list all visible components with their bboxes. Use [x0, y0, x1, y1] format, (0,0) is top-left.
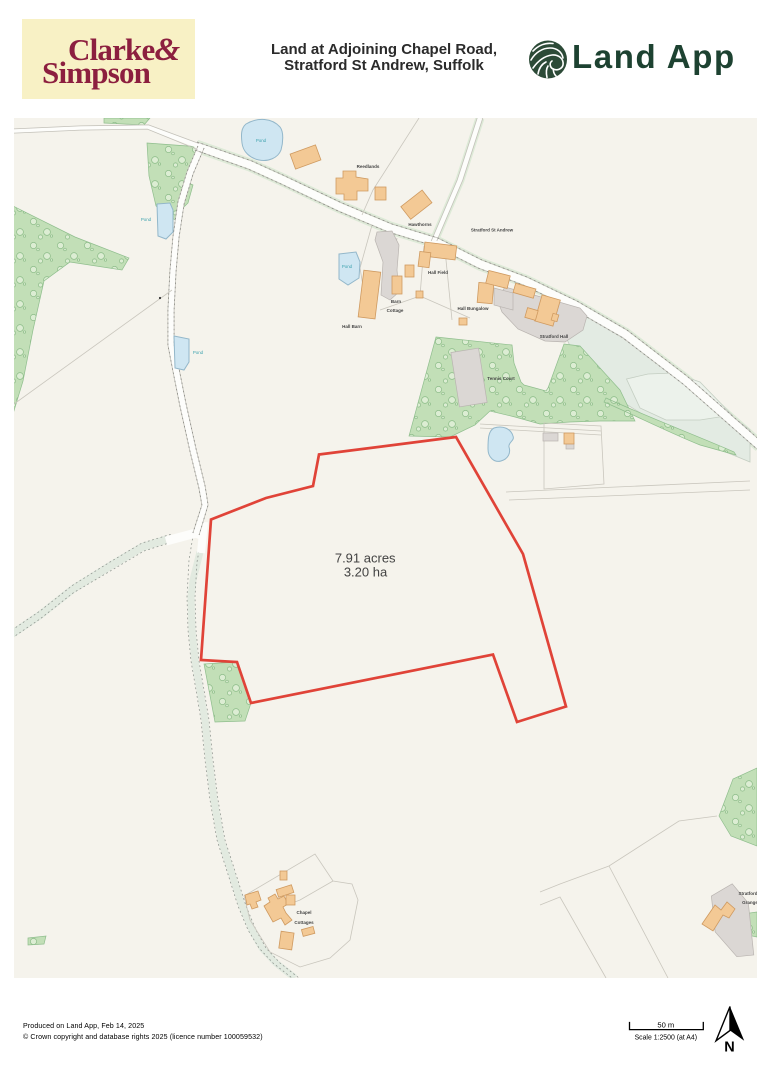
svg-text:Pond: Pond: [256, 138, 267, 143]
svg-text:3.20 ha: 3.20 ha: [344, 565, 388, 580]
svg-text:Cottage: Cottage: [387, 308, 404, 313]
svg-text:Reedlands: Reedlands: [357, 164, 380, 169]
svg-text:N: N: [724, 1040, 734, 1056]
svg-text:Pond: Pond: [193, 350, 204, 355]
svg-text:7.91 acres: 7.91 acres: [335, 551, 396, 566]
svg-text:Stratford Hall: Stratford Hall: [540, 334, 569, 339]
svg-text:Grange: Grange: [742, 900, 758, 905]
svg-text:50 m: 50 m: [657, 1020, 674, 1029]
svg-text:Hawthorns: Hawthorns: [408, 222, 432, 227]
svg-text:Tennis Court: Tennis Court: [487, 376, 515, 381]
svg-text:Pond: Pond: [342, 264, 353, 269]
svg-text:Stratford: Stratford: [739, 891, 758, 896]
svg-text:Stratford St Andrew: Stratford St Andrew: [471, 228, 514, 233]
svg-text:Hall Bungalow: Hall Bungalow: [457, 306, 489, 311]
svg-text:Hall Field: Hall Field: [428, 270, 448, 275]
svg-text:Hall Barn: Hall Barn: [342, 324, 362, 329]
svg-text:Chapel: Chapel: [296, 910, 311, 915]
svg-text:Scale 1:2500 (at A4): Scale 1:2500 (at A4): [635, 1035, 697, 1042]
svg-text:Cottages: Cottages: [294, 920, 314, 925]
svg-text:Pond: Pond: [141, 217, 152, 222]
svg-text:Barn: Barn: [391, 299, 402, 304]
